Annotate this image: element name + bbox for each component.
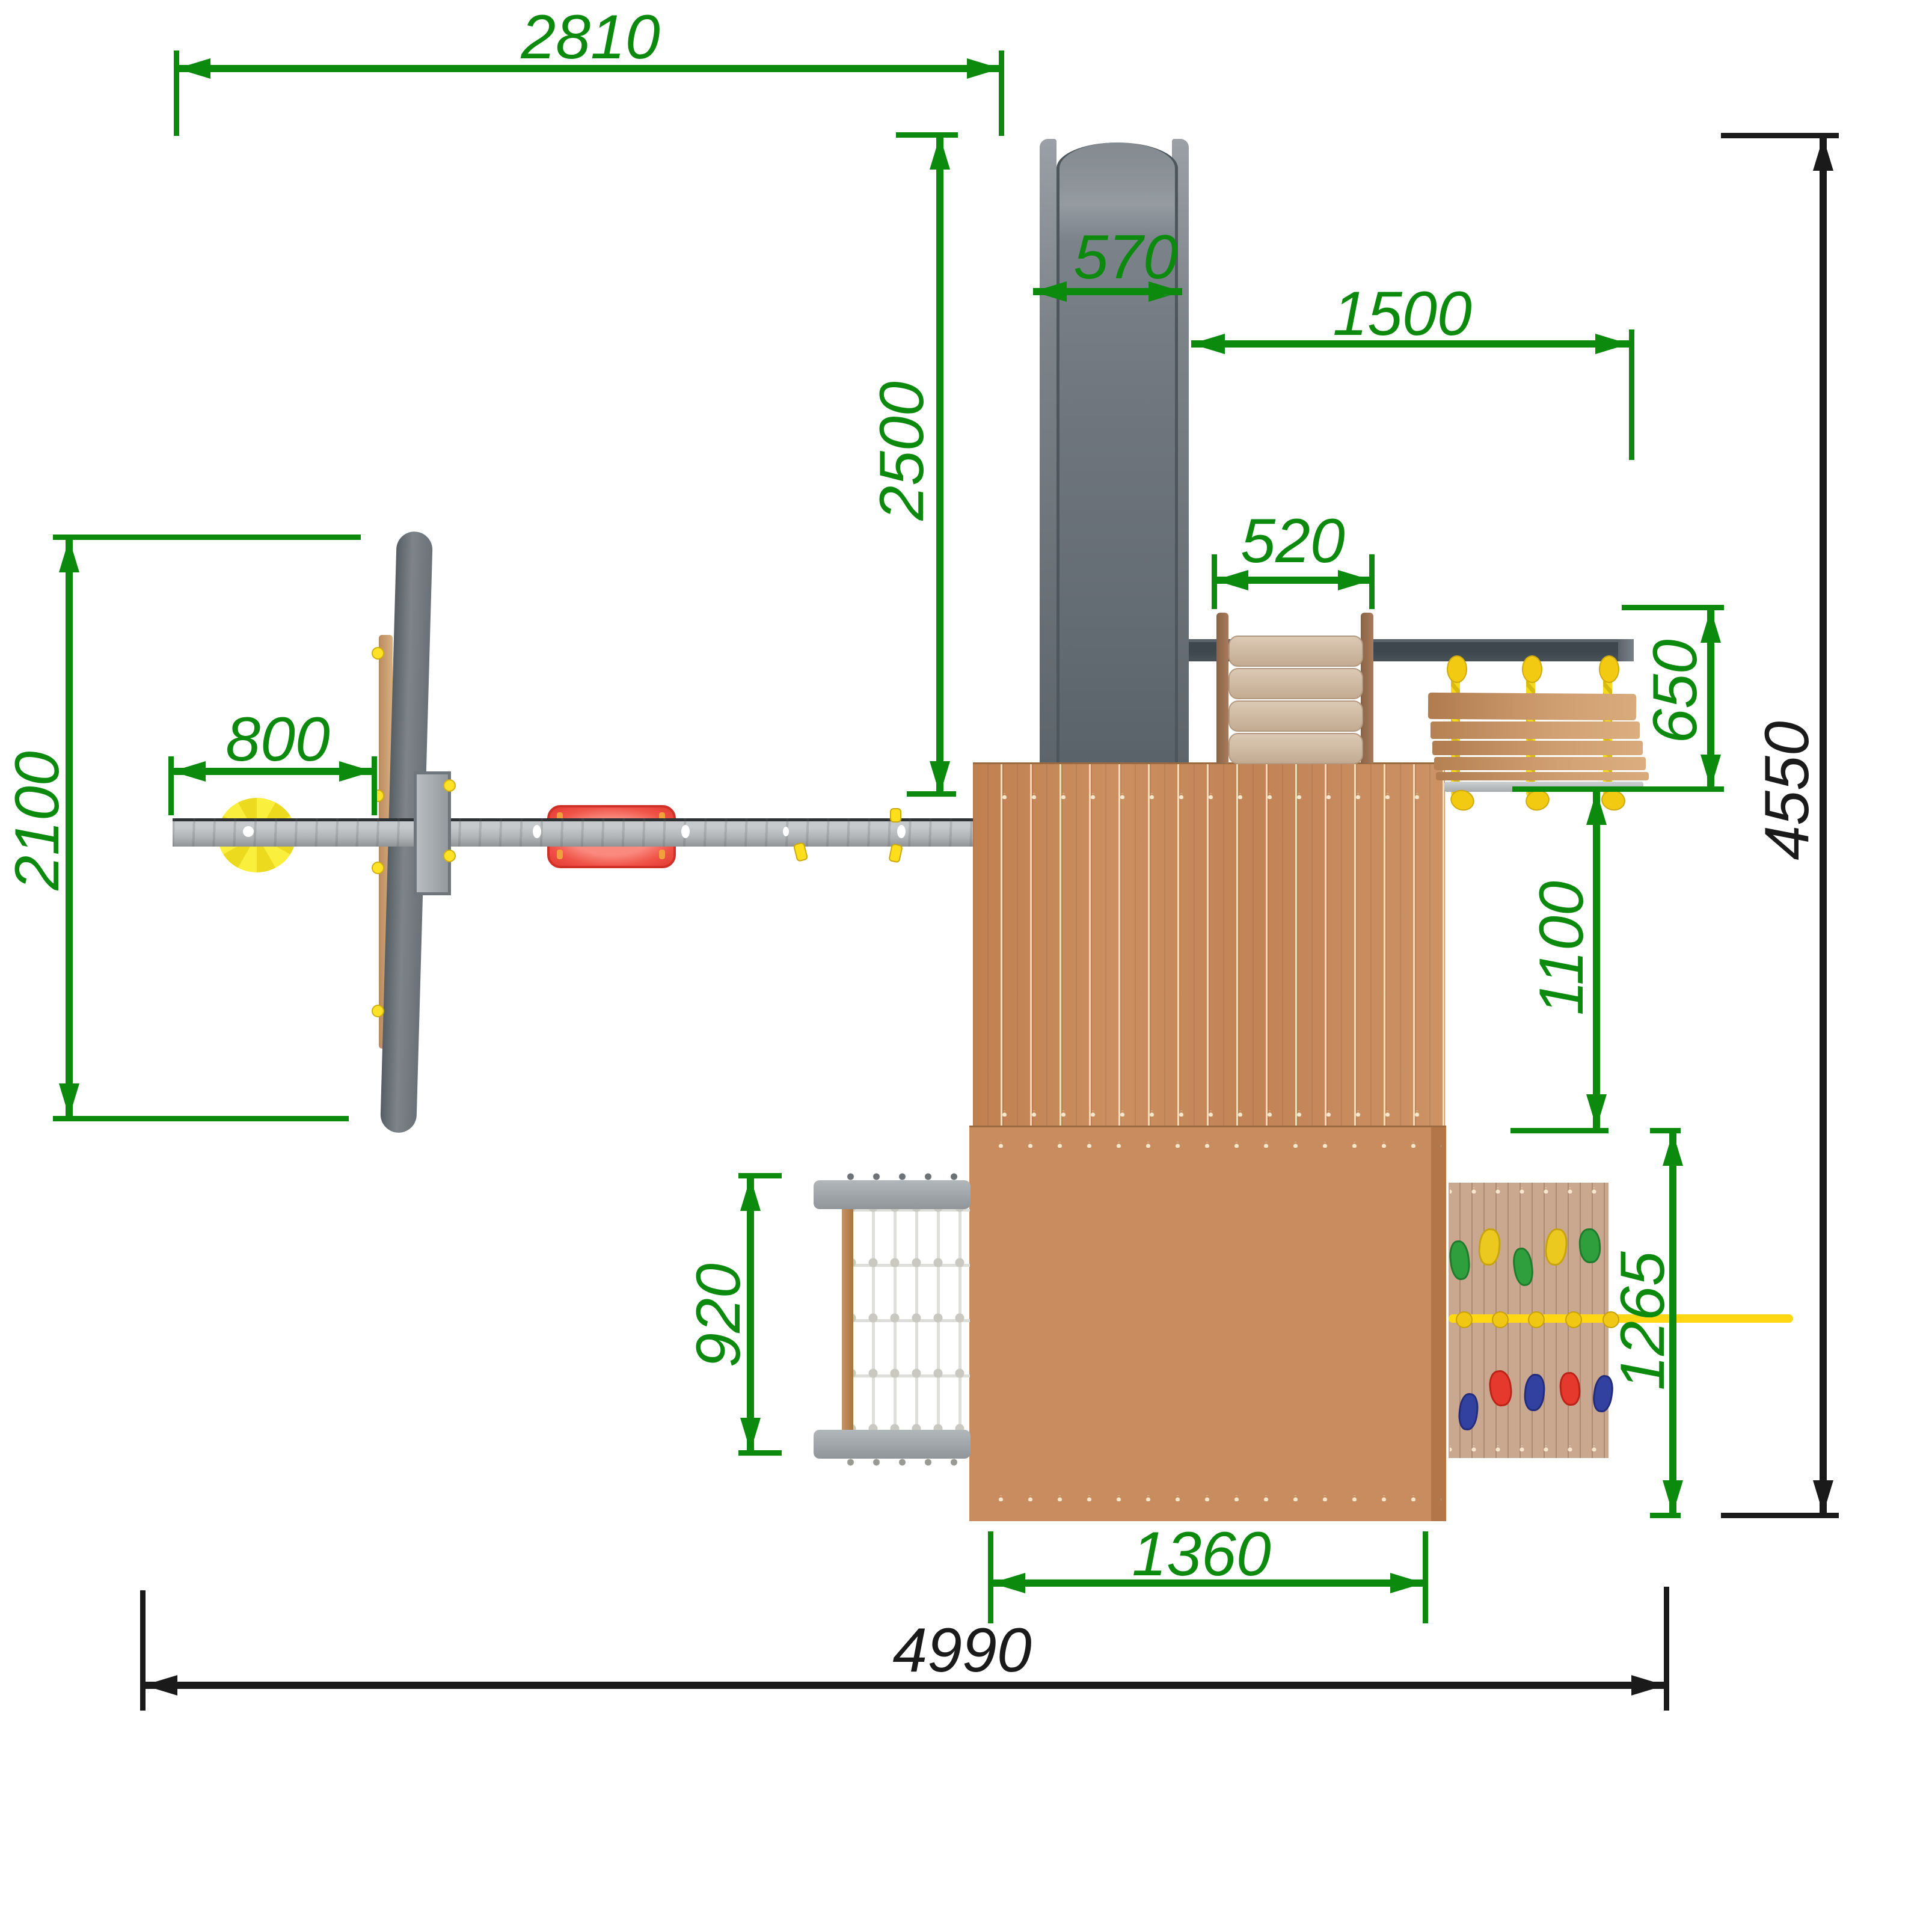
bolt-row	[838, 1172, 967, 1181]
nail-row	[978, 1111, 1440, 1117]
ladder-rung	[1228, 700, 1363, 732]
climbing-hold-red	[1559, 1371, 1582, 1407]
ladder-rung	[1228, 733, 1363, 764]
dim-2810: 2810	[174, 24, 1004, 136]
lower-platform-deck	[969, 1126, 1446, 1521]
dim-label: 2100	[6, 751, 69, 890]
dim-4550: 4550	[1721, 133, 1841, 1522]
glider-pin	[372, 647, 384, 660]
glider-pin	[443, 779, 456, 792]
rope-knot	[1456, 1311, 1473, 1328]
dim-650: 650	[1512, 605, 1729, 797]
dim-tick	[53, 535, 361, 540]
seat-peg	[659, 850, 665, 859]
dim-label: 1265	[1612, 1251, 1674, 1390]
climbing-net	[853, 1209, 970, 1430]
net-frame-top-bar	[814, 1180, 971, 1209]
glider-pin	[372, 862, 384, 874]
dim-line	[936, 136, 943, 795]
dim-2500: 2500	[884, 130, 968, 800]
dim-line	[1215, 577, 1372, 584]
dim-1265: 1265	[1650, 1128, 1686, 1519]
nail-row	[974, 1495, 1441, 1501]
rope-knot	[1565, 1311, 1582, 1328]
dim-label: 650	[1644, 639, 1707, 744]
dim-label: 2500	[871, 381, 933, 520]
climbing-hold-green	[1448, 1239, 1472, 1281]
ladder-rung	[1228, 636, 1363, 667]
rope-knot	[1528, 1311, 1545, 1328]
bolt-row	[838, 1457, 967, 1467]
dim-label: 4550	[1756, 721, 1818, 860]
playground-top-view-drawing: 2810 2500 570 1500 520 650 2100	[0, 0, 1932, 1924]
ladder-rail	[1216, 613, 1228, 764]
dim-label: 1500	[1332, 283, 1471, 345]
climbing-hold-yellow	[1477, 1228, 1501, 1267]
deck-edge-board	[1431, 1127, 1446, 1521]
dim-label: 2810	[521, 6, 660, 69]
dim-label: 920	[687, 1263, 750, 1368]
dim-label: 520	[1240, 510, 1345, 572]
beam-hole	[783, 827, 789, 836]
beam-hole	[897, 825, 906, 838]
dim-800: 800	[168, 709, 379, 818]
climbing-hold-blue	[1457, 1392, 1480, 1431]
dim-label: 800	[225, 708, 330, 771]
rope-clip	[890, 808, 901, 823]
beam-hole	[533, 825, 541, 838]
climbing-hold-yellow	[1543, 1227, 1569, 1267]
dim-520: 520	[1212, 514, 1374, 610]
climbing-hold-green	[1511, 1246, 1536, 1287]
rope-knot	[1492, 1311, 1509, 1328]
beam-hole	[681, 825, 690, 838]
nail-row	[1450, 1187, 1607, 1193]
net-frame-bottom-bar	[814, 1430, 971, 1459]
seat-peg	[557, 850, 563, 859]
dim-920: 920	[738, 1173, 787, 1456]
ladder-rung	[1228, 668, 1363, 699]
nail-row	[978, 793, 1440, 799]
nail-row	[974, 1142, 1441, 1148]
nail-row	[1450, 1445, 1607, 1451]
dim-tick	[1629, 329, 1634, 460]
net-wood-strip	[842, 1209, 853, 1430]
rope-knot	[1447, 655, 1467, 683]
dim-tick	[53, 1116, 349, 1121]
dim-4990: 4990	[140, 1587, 1670, 1713]
climbing-hold-green	[1578, 1228, 1602, 1264]
climbing-hold-red	[1487, 1369, 1513, 1408]
ladder-rungs	[1228, 634, 1361, 763]
glider-pin	[372, 1005, 384, 1017]
dim-label: 1100	[1530, 881, 1593, 1016]
dim-1500: 1500	[1190, 301, 1635, 463]
dim-label: 4990	[892, 1619, 1031, 1682]
dim-tick	[1510, 1128, 1608, 1133]
upper-platform-deck	[973, 762, 1445, 1127]
glider-pin	[443, 850, 456, 862]
dim-1100: 1100	[1510, 791, 1613, 1137]
dim-label: 1360	[1132, 1523, 1271, 1585]
dim-2100: 2100	[36, 535, 373, 1124]
climbing-hold-blue	[1523, 1373, 1546, 1412]
dim-label: 570	[1073, 226, 1178, 289]
dim-570: 570	[1032, 228, 1183, 301]
